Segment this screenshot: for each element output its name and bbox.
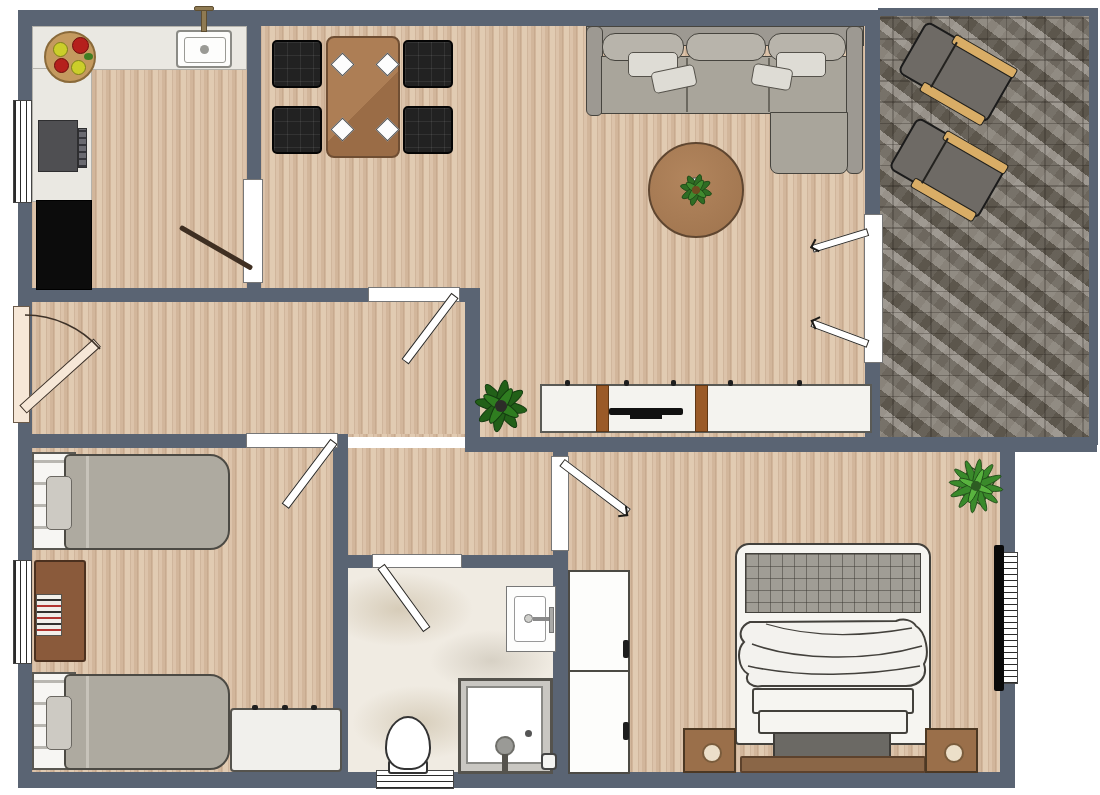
fruit-leaf (84, 53, 93, 60)
nightstand-left-knob (702, 743, 722, 763)
patio-border-top (878, 8, 1097, 16)
wall-bottom (18, 772, 1015, 788)
single-bed-1-pillow (46, 476, 72, 530)
dining-chair-3 (403, 40, 453, 88)
wardrobe-handle-1 (623, 640, 629, 658)
tv-sideboard (540, 384, 872, 433)
dining-chair-4 (403, 106, 453, 154)
shower-head (541, 753, 557, 770)
wardrobe-handle-2 (623, 722, 629, 740)
sideboard-divider-2 (695, 385, 708, 432)
nightstand-right (925, 728, 978, 773)
fruit-red-2 (54, 58, 69, 73)
nightstand-left (683, 728, 736, 773)
living-floor-plant (468, 374, 534, 438)
bed-headboard-grid (745, 553, 921, 613)
sofa-arm-right (846, 26, 863, 174)
bath-sink-drain (524, 614, 533, 623)
entry-door-swing-arc (20, 305, 115, 420)
bed-folded-sheet-2 (758, 710, 908, 734)
tv-screen (609, 408, 683, 415)
dining-chair-2 (272, 106, 322, 154)
stove-controls (78, 128, 87, 168)
toilet-bowl (385, 716, 431, 770)
master-tv (994, 545, 1004, 691)
dresser-knob-1 (252, 705, 258, 710)
master-plant (942, 452, 1010, 520)
kitchen-black-counter (36, 200, 92, 290)
sink-faucet-handle (194, 6, 214, 11)
wardrobe (568, 570, 630, 774)
single-bed-1-fold (86, 456, 89, 548)
shower-cabin (458, 678, 553, 774)
bed-bench (740, 756, 926, 773)
fruit-green-2 (71, 60, 86, 75)
lounge-chair-2-seam (921, 138, 949, 184)
floor-plan (0, 0, 1100, 795)
bed-foot-cushion (773, 732, 891, 758)
kitchen-window (13, 100, 32, 203)
small-bedroom-window (13, 560, 32, 664)
sofa-cushion-2 (686, 33, 766, 61)
bath-sink-tap (549, 607, 554, 633)
sofa-chaise (770, 112, 848, 174)
fruit-green-1 (53, 42, 68, 57)
sideboard-knob-1 (565, 380, 570, 386)
stove (38, 120, 78, 172)
wall-top (18, 10, 880, 26)
sideboard-knob-3 (671, 380, 676, 386)
nightstand-right-knob (944, 743, 964, 763)
corridor-floor (348, 448, 553, 568)
wardrobe-divider (570, 670, 628, 672)
sideboard-knob-5 (797, 380, 802, 386)
sideboard-knob-4 (728, 380, 733, 386)
fruit-bowl (44, 31, 96, 83)
desk-books (36, 594, 62, 636)
rug-plant (670, 164, 722, 216)
sink-drain (200, 45, 209, 54)
single-bed-2-fold (86, 676, 89, 768)
kitchen-sink (176, 30, 232, 68)
tv-stand (630, 415, 662, 419)
sideboard-divider-1 (596, 385, 609, 432)
bath-sink (506, 586, 556, 652)
shower-knob (525, 730, 532, 737)
dining-chair-1 (272, 40, 322, 88)
sink-faucet (201, 8, 207, 32)
dresser (230, 708, 342, 772)
shower-drain (495, 736, 515, 756)
patio-border-right (1089, 8, 1098, 445)
master-bedroom-window (1002, 552, 1018, 684)
sideboard-knob-2 (624, 380, 629, 386)
single-bed-2-pillow (46, 696, 72, 750)
shower-pipe (502, 754, 508, 772)
bed-duvet (736, 616, 930, 692)
dresser-knob-3 (311, 705, 317, 710)
lounge-chair-1-seam (930, 42, 958, 88)
dresser-knob-2 (282, 705, 288, 710)
fruit-red-1 (72, 37, 89, 54)
